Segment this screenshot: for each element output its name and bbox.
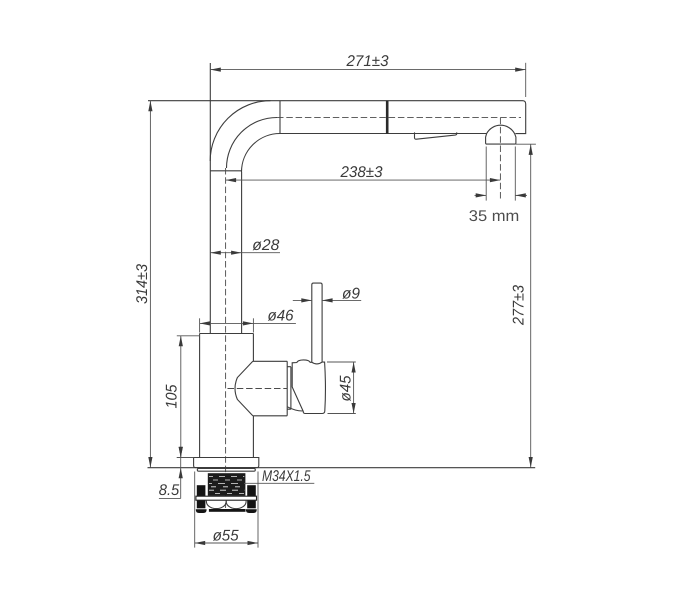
svg-text:105: 105 [164,384,181,408]
svg-text:ø55: ø55 [213,528,239,545]
svg-text:277±3: 277±3 [511,285,528,326]
svg-text:35 mm: 35 mm [469,208,520,225]
svg-text:314±3: 314±3 [134,264,151,304]
svg-text:271±3: 271±3 [346,53,389,70]
svg-text:ø46: ø46 [268,308,294,325]
svg-text:8.5: 8.5 [159,482,180,499]
svg-text:ø45: ø45 [338,375,355,401]
svg-text:ø28: ø28 [252,237,279,254]
svg-text:M34X1.5: M34X1.5 [262,468,311,485]
svg-text:ø9: ø9 [342,285,360,302]
svg-text:238±3: 238±3 [340,164,383,181]
